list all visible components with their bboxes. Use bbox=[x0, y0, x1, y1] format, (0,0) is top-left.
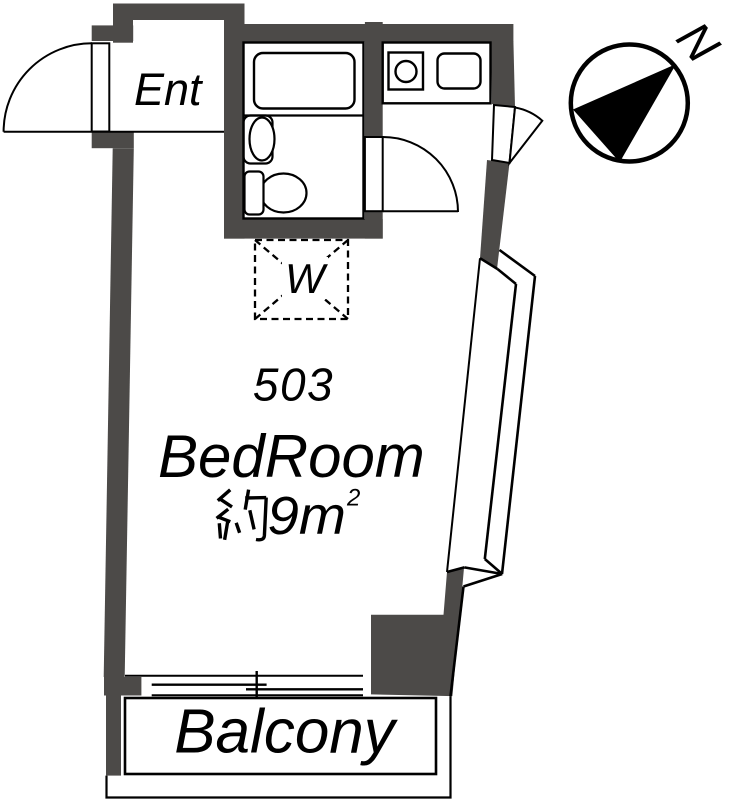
svg-text:2: 2 bbox=[346, 485, 360, 512]
svg-text:503: 503 bbox=[253, 358, 334, 410]
svg-text:9m: 9m bbox=[268, 486, 347, 546]
svg-text:Ent: Ent bbox=[134, 64, 204, 115]
svg-text:Balcony: Balcony bbox=[174, 698, 399, 767]
svg-text:W: W bbox=[285, 255, 328, 302]
svg-text:BedRoom: BedRoom bbox=[158, 423, 425, 490]
